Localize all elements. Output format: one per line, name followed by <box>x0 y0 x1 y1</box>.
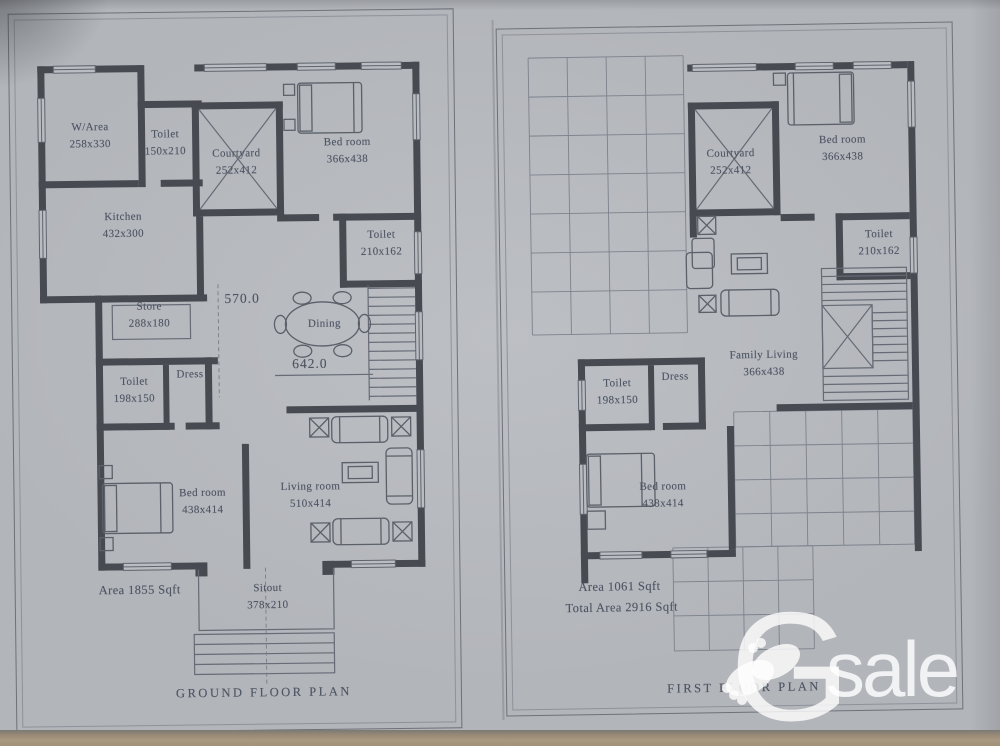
room-label-courtyard: Courtyard252x412 <box>212 145 261 179</box>
ff-windows <box>573 61 922 559</box>
room-label-courtyard-ff: Courtyard252x412 <box>706 145 755 179</box>
room-label-living: Living room510x414 <box>280 478 340 512</box>
first-floor-sheet: Courtyard252x412 Bed room366x438 Toilet2… <box>496 21 964 716</box>
ground-floor-sheet: W/Area258x330 Toilet150x210 Courtyard252… <box>8 8 463 733</box>
room-label-sitout: Sitout378x210 <box>247 580 289 614</box>
room-label-warea: W/Area258x330 <box>69 119 111 153</box>
dimension-570: 570.0 <box>224 289 260 310</box>
room-label-dining: Dining <box>308 315 341 332</box>
room-label-bed-bottom-ff: Bed room438x414 <box>639 478 686 512</box>
room-label-dress: Dress <box>176 366 203 383</box>
room-label-bed-top-ff: Bed room366x438 <box>819 131 866 165</box>
first-floor-area-text: Area 1061 Sqft <box>578 577 660 597</box>
room-label-dress-ff: Dress <box>661 368 688 385</box>
ff-walls <box>573 61 922 583</box>
floor-plan-photo: W/Area258x330 Toilet150x210 Courtyard252… <box>0 0 1000 746</box>
room-label-toilet-right-ff: Toilet210x162 <box>858 226 900 260</box>
room-label-toilet-right: Toilet210x162 <box>361 226 403 260</box>
table-surface-edge <box>0 730 1000 746</box>
room-label-bed-top: Bed room366x438 <box>324 134 371 168</box>
ground-floor-area-text: Area 1855 Sqft <box>99 580 181 600</box>
room-label-family-living: Family Living366x438 <box>729 346 798 380</box>
dimension-642: 642.0 <box>292 354 328 375</box>
room-label-toilet-top: Toilet150x210 <box>144 126 186 160</box>
room-label-toilet-mid-ff: Toilet198x150 <box>596 375 638 409</box>
room-label-store: Store288x180 <box>128 298 170 332</box>
room-label-kitchen: Kitchen432x300 <box>102 209 144 243</box>
first-floor-title: FIRST FLOOR PLAN <box>667 677 821 698</box>
ground-floor-drawing <box>9 9 464 734</box>
room-label-toilet-mid: Toilet198x150 <box>113 373 155 407</box>
room-label-bed-bottom: Bed room438x414 <box>179 485 226 519</box>
total-area-text: Total Area 2916 Sqft <box>565 597 678 618</box>
ground-floor-title: GROUND FLOOR PLAN <box>176 682 352 703</box>
